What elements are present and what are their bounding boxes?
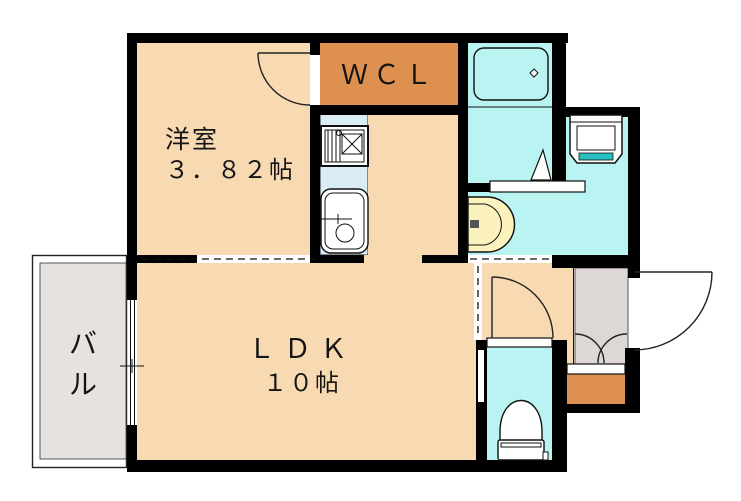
label-wcl: ＷＣＬ — [341, 60, 437, 91]
floor-plan-canvas: 洋室 ３．８２帖 ＷＣＬ ＬＤＫ １０帖 バ ル — [0, 0, 741, 501]
label-balcony-2: ル — [69, 368, 97, 401]
label-ldk-size: １０帖 — [263, 369, 341, 397]
toilet-window — [478, 350, 484, 402]
kitchen-opening — [364, 255, 422, 264]
label-balcony-1: バ — [69, 327, 97, 360]
toilet-door-sill — [487, 338, 552, 347]
label-ldk: ＬＤＫ — [248, 334, 356, 365]
hallway-floor — [468, 263, 573, 340]
balcony-floor — [40, 263, 126, 459]
entrance-step — [567, 364, 625, 374]
kitchen-hall-floor — [368, 115, 458, 263]
washing-machine-icon — [570, 115, 622, 163]
balcony — [33, 256, 127, 468]
bathroom-sliding-door — [490, 181, 585, 192]
porch-floor — [567, 374, 625, 404]
kitchen-sink-icon — [318, 189, 368, 253]
hallway-sliver — [567, 340, 573, 364]
floor-plan: 洋室 ３．８２帖 ＷＣＬ ＬＤＫ １０帖 バ ル — [0, 0, 741, 501]
label-yoshitsu: 洋室 — [165, 125, 219, 154]
washbasin-icon — [468, 197, 515, 252]
stove-icon — [321, 126, 368, 166]
room-yoshitsu-floor — [137, 43, 310, 255]
label-yoshitsu-size: ３．８２帖 — [165, 156, 295, 184]
